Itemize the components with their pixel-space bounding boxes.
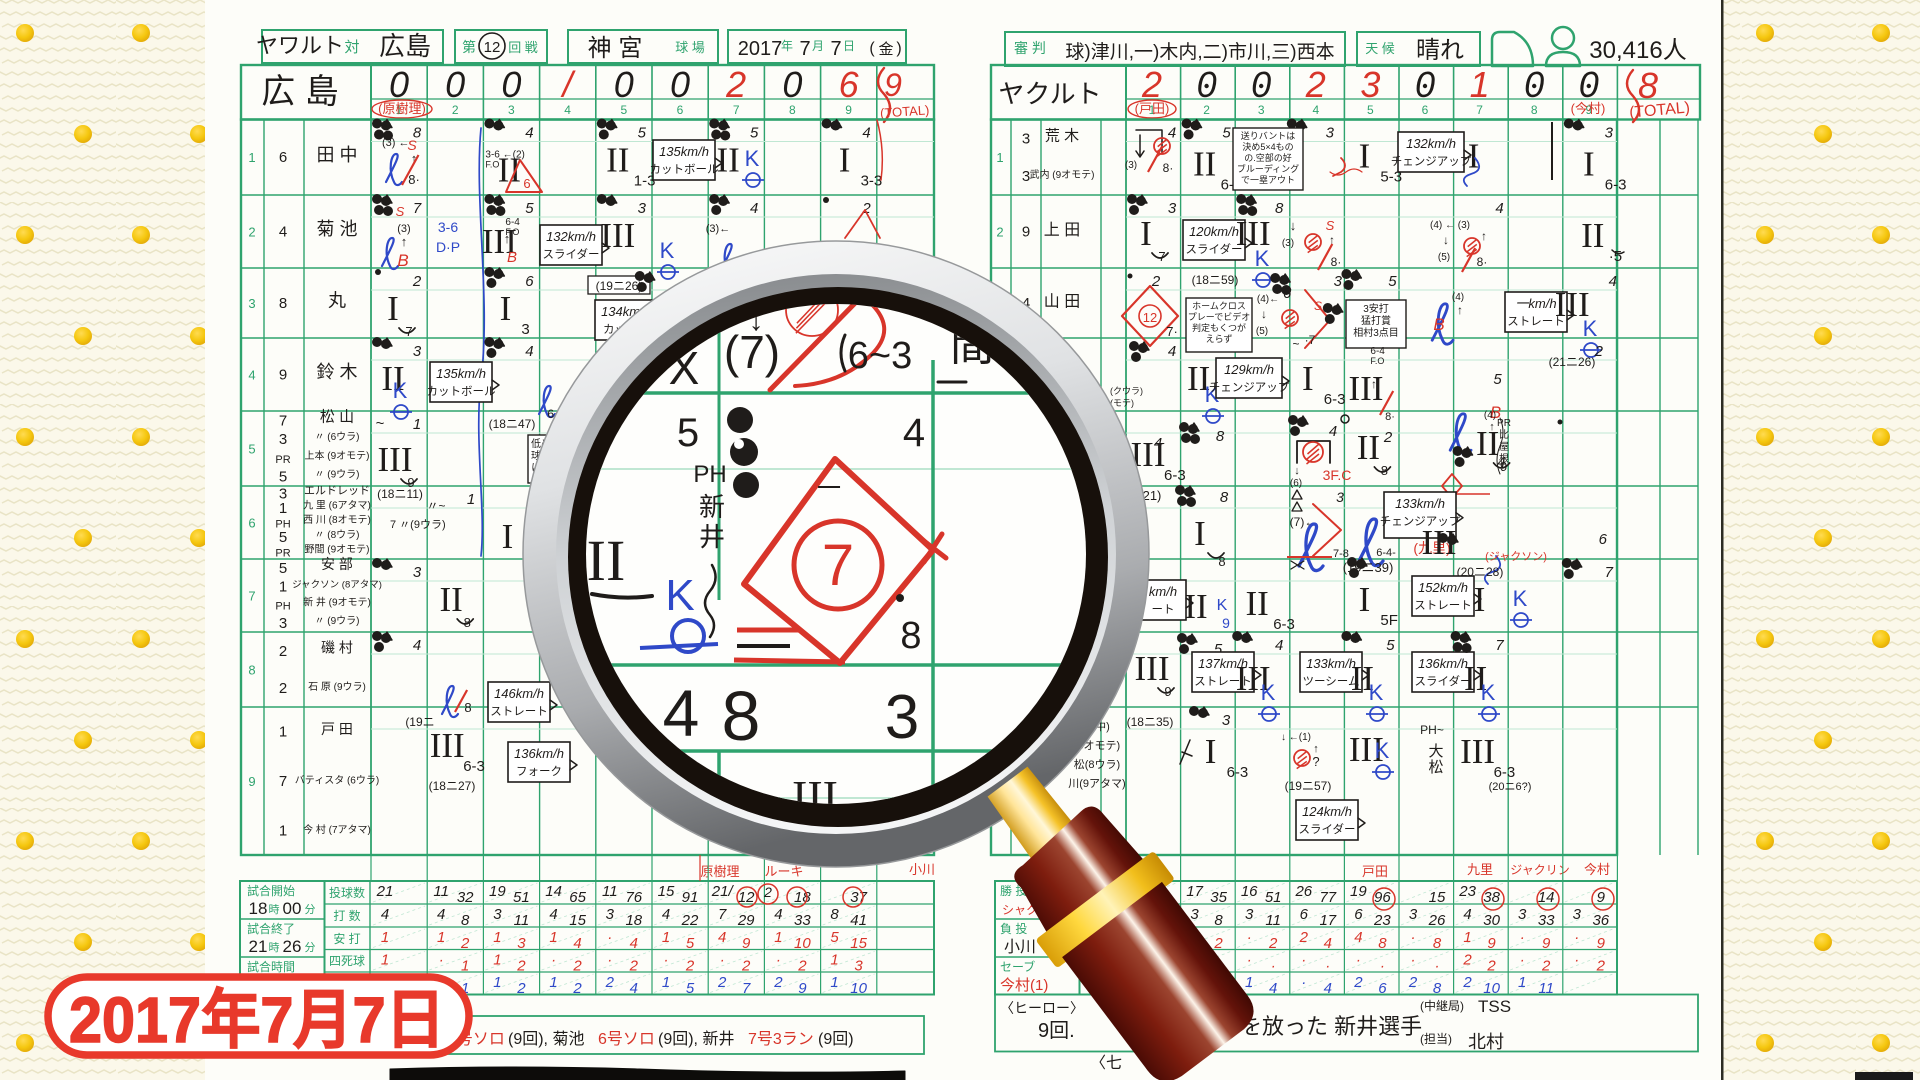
svg-text:3F.C: 3F.C bbox=[1323, 467, 1352, 483]
svg-text:8·: 8· bbox=[1385, 411, 1395, 423]
svg-text:6: 6 bbox=[1422, 103, 1429, 117]
svg-text:(5): (5) bbox=[1256, 326, 1268, 337]
svg-text:9: 9 bbox=[1487, 935, 1496, 952]
svg-text:4: 4 bbox=[248, 368, 255, 383]
svg-text:4: 4 bbox=[718, 929, 726, 946]
svg-text:8: 8 bbox=[464, 700, 471, 715]
svg-text:·: · bbox=[664, 952, 669, 969]
svg-text:神 宮: 神 宮 bbox=[588, 35, 643, 62]
svg-text:↑: ↑ bbox=[401, 234, 408, 249]
svg-text:山 田: 山 田 bbox=[1044, 293, 1080, 311]
svg-text:4: 4 bbox=[573, 935, 581, 952]
svg-text:·: · bbox=[1411, 952, 1416, 969]
svg-text:·: · bbox=[1325, 958, 1330, 975]
svg-text:): ) bbox=[896, 40, 901, 57]
svg-text:133km/h: 133km/h bbox=[1395, 496, 1445, 511]
svg-text:1: 1 bbox=[279, 578, 287, 595]
svg-text:7: 7 bbox=[1495, 637, 1504, 654]
svg-text:0: 0 bbox=[782, 64, 802, 105]
svg-text:4: 4 bbox=[549, 906, 557, 923]
svg-text:2: 2 bbox=[605, 974, 615, 991]
svg-text:·: · bbox=[1301, 952, 1306, 969]
svg-text:136km/h: 136km/h bbox=[514, 746, 564, 761]
svg-text:K: K bbox=[1481, 680, 1496, 705]
svg-text:5: 5 bbox=[1222, 125, 1231, 142]
svg-text:I: I bbox=[1583, 145, 1595, 184]
svg-text:3: 3 bbox=[1168, 200, 1177, 217]
svg-text:2: 2 bbox=[279, 643, 287, 660]
svg-text:上 田: 上 田 bbox=[1044, 221, 1080, 239]
svg-text:1: 1 bbox=[774, 929, 782, 946]
svg-text:2: 2 bbox=[797, 958, 807, 975]
svg-text:↓: ↓ bbox=[1290, 218, 1297, 233]
svg-text:(3): (3) bbox=[1282, 238, 1294, 249]
svg-text:PH: PH bbox=[275, 601, 290, 613]
svg-text:7: 7 bbox=[405, 324, 412, 339]
svg-text:1: 1 bbox=[437, 929, 445, 946]
svg-text:II: II bbox=[717, 141, 740, 180]
svg-text:武内 (9オモテ): 武内 (9オモテ) bbox=[1030, 168, 1095, 181]
svg-text:7: 7 bbox=[279, 412, 287, 429]
svg-text:エルドレッド: エルドレッド bbox=[304, 485, 370, 497]
svg-text:カットボール: カットボール bbox=[427, 385, 496, 398]
svg-text:·: · bbox=[1271, 958, 1276, 975]
svg-text:33: 33 bbox=[794, 912, 811, 929]
svg-text:0: 0 bbox=[501, 64, 521, 105]
svg-text:·: · bbox=[1574, 929, 1579, 946]
svg-text:広島: 広島 bbox=[379, 31, 431, 61]
svg-text:ホームクロス: ホームクロス bbox=[1192, 301, 1246, 311]
svg-text:2: 2 bbox=[1353, 974, 1363, 991]
svg-text:4: 4 bbox=[750, 200, 758, 217]
svg-text:I: I bbox=[1359, 137, 1371, 176]
svg-text:9: 9 bbox=[248, 774, 255, 789]
svg-text:四死球: 四死球 bbox=[329, 954, 365, 968]
svg-text:一km/h: 一km/h bbox=[1515, 296, 1556, 311]
svg-text:K: K bbox=[1583, 316, 1598, 341]
svg-text:6: 6 bbox=[677, 103, 684, 117]
svg-text:II: II bbox=[1581, 216, 1604, 255]
svg-text:原樹理: 原樹理 bbox=[700, 864, 739, 879]
svg-text:の.空部の好: の.空部の好 bbox=[1244, 152, 1292, 163]
svg-text:9: 9 bbox=[1597, 935, 1606, 952]
svg-text:3: 3 bbox=[413, 564, 422, 581]
svg-text:2: 2 bbox=[279, 680, 287, 697]
svg-text:今村(1): 今村(1) bbox=[1000, 977, 1048, 994]
svg-text:4: 4 bbox=[1168, 125, 1176, 142]
svg-text:~: ~ bbox=[374, 333, 382, 349]
svg-text:9: 9 bbox=[279, 367, 287, 384]
svg-text:II: II bbox=[1193, 145, 1216, 184]
svg-text:21: 21 bbox=[249, 937, 268, 956]
svg-text:4: 4 bbox=[1495, 200, 1503, 217]
svg-text:7: 7 bbox=[248, 589, 255, 604]
svg-text:4: 4 bbox=[1354, 929, 1362, 946]
svg-text:菊 池: 菊 池 bbox=[316, 219, 357, 239]
svg-text:2: 2 bbox=[1268, 935, 1278, 952]
svg-text:5: 5 bbox=[686, 935, 695, 952]
svg-text:1: 1 bbox=[830, 952, 838, 969]
svg-text:4: 4 bbox=[862, 125, 870, 142]
svg-text:4: 4 bbox=[1324, 935, 1332, 952]
svg-text:3: 3 bbox=[885, 683, 919, 752]
svg-text:II: II bbox=[1357, 428, 1380, 467]
svg-text:135km/h: 135km/h bbox=[436, 366, 486, 381]
svg-text:2: 2 bbox=[1213, 935, 1223, 952]
svg-text:6: 6 bbox=[1300, 906, 1309, 923]
svg-text:7-8: 7-8 bbox=[1333, 548, 1349, 560]
svg-text:8: 8 bbox=[1218, 554, 1225, 569]
svg-text:松 山: 松 山 bbox=[320, 408, 354, 425]
svg-text:·: · bbox=[607, 929, 612, 946]
svg-text:ブルーディング: ブルーディング bbox=[1237, 163, 1299, 174]
svg-text:(3) ←: (3) ← bbox=[382, 137, 410, 149]
svg-text:試合開始: 試合開始 bbox=[247, 883, 295, 898]
svg-text:·7: ·7 bbox=[1305, 333, 1316, 347]
svg-text:12: 12 bbox=[738, 889, 755, 906]
svg-text:00: 00 bbox=[283, 899, 302, 918]
svg-text:PH~: PH~ bbox=[1420, 723, 1444, 737]
svg-text:2: 2 bbox=[1141, 64, 1162, 105]
svg-text:II: II bbox=[1246, 584, 1269, 623]
svg-text:S: S bbox=[1326, 218, 1335, 233]
svg-text:金: 金 bbox=[878, 41, 893, 58]
svg-text:送りバントは: 送りバントは bbox=[1241, 130, 1295, 141]
svg-text:132km/h: 132km/h bbox=[546, 229, 596, 244]
svg-text:2: 2 bbox=[717, 974, 727, 991]
svg-text:7: 7 bbox=[1158, 249, 1165, 264]
svg-text:4: 4 bbox=[1312, 103, 1319, 117]
svg-text:1: 1 bbox=[381, 929, 389, 946]
svg-text:(中継局): (中継局) bbox=[1420, 998, 1464, 1013]
svg-text:8: 8 bbox=[1214, 912, 1223, 929]
svg-text:ジャクリン: ジャクリン bbox=[1510, 863, 1569, 877]
svg-text:9: 9 bbox=[1542, 935, 1551, 952]
svg-text:3: 3 bbox=[1022, 130, 1030, 147]
svg-text:8: 8 bbox=[461, 912, 470, 929]
svg-text:7: 7 bbox=[799, 38, 810, 60]
svg-text:バティスタ (6ウラ): バティスタ (6ウラ) bbox=[295, 775, 379, 787]
svg-text:152km/h: 152km/h bbox=[1418, 580, 1468, 595]
svg-text:4: 4 bbox=[1275, 637, 1283, 654]
svg-text:3: 3 bbox=[1360, 64, 1380, 105]
svg-text:3: 3 bbox=[279, 431, 287, 448]
svg-text:ート: ート bbox=[1152, 604, 1175, 616]
svg-text:6: 6 bbox=[839, 64, 860, 105]
svg-text:III: III bbox=[430, 726, 465, 765]
svg-text:1: 1 bbox=[248, 150, 255, 165]
svg-text:第: 第 bbox=[462, 39, 476, 55]
svg-text:4: 4 bbox=[1329, 423, 1337, 440]
svg-text:III: III bbox=[1135, 649, 1170, 688]
svg-text:比: 比 bbox=[1499, 429, 1509, 441]
svg-text:今村: 今村 bbox=[1584, 862, 1610, 877]
svg-text:21): 21) bbox=[1143, 488, 1162, 503]
svg-text:18: 18 bbox=[625, 912, 642, 929]
svg-text:(戸田): (戸田) bbox=[1135, 101, 1170, 116]
svg-text:9: 9 bbox=[1164, 684, 1171, 699]
svg-text:(9回), 菊池: (9回), 菊池 bbox=[508, 1030, 584, 1048]
svg-text:(担当): (担当) bbox=[1420, 1032, 1452, 1046]
svg-text:2: 2 bbox=[1541, 958, 1551, 975]
svg-text:1: 1 bbox=[279, 500, 287, 517]
svg-text:I: I bbox=[387, 289, 399, 328]
svg-text:1: 1 bbox=[662, 974, 670, 991]
svg-text:30: 30 bbox=[1483, 912, 1500, 929]
svg-text:3: 3 bbox=[1518, 906, 1527, 923]
svg-text:·: · bbox=[1520, 952, 1525, 969]
svg-text:8: 8 bbox=[1216, 428, 1225, 445]
svg-text:I: I bbox=[1302, 359, 1314, 398]
svg-text:(7)←: (7)← bbox=[1290, 515, 1317, 529]
svg-text:2: 2 bbox=[248, 225, 255, 240]
svg-text:4: 4 bbox=[1609, 273, 1617, 290]
svg-text:小川: 小川 bbox=[909, 862, 935, 877]
svg-text:8: 8 bbox=[1638, 65, 1658, 106]
svg-text:1: 1 bbox=[1245, 974, 1253, 991]
svg-text:32: 32 bbox=[457, 889, 474, 906]
svg-text:12: 12 bbox=[1143, 310, 1157, 325]
svg-text:1: 1 bbox=[493, 974, 501, 991]
svg-text:4: 4 bbox=[630, 935, 638, 952]
svg-text:小川: 小川 bbox=[1004, 938, 1036, 956]
svg-text:(19ニ57): (19ニ57) bbox=[1285, 779, 1332, 793]
svg-text:2: 2 bbox=[412, 273, 422, 290]
svg-text:5: 5 bbox=[1386, 637, 1395, 654]
svg-text:·: · bbox=[1356, 952, 1361, 969]
svg-text:野間 (9オモテ): 野間 (9オモテ) bbox=[305, 543, 370, 555]
svg-text:21: 21 bbox=[376, 883, 394, 900]
svg-text:5: 5 bbox=[1367, 103, 1374, 117]
svg-text:8·: 8· bbox=[408, 172, 420, 187]
svg-text:3: 3 bbox=[1409, 906, 1418, 923]
svg-text:I: I bbox=[1474, 580, 1486, 619]
svg-text:(9回), 新井: (9回), 新井 bbox=[658, 1030, 734, 1048]
svg-text:15: 15 bbox=[569, 912, 586, 929]
svg-text:プレーでビデオ: プレーでビデオ bbox=[1188, 311, 1250, 322]
svg-text:I: I bbox=[1194, 514, 1206, 553]
svg-text:(18ニ27): (18ニ27) bbox=[429, 779, 476, 793]
svg-text:1: 1 bbox=[549, 929, 557, 946]
svg-text:8: 8 bbox=[1433, 935, 1442, 952]
svg-text:6: 6 bbox=[1283, 285, 1292, 302]
svg-text:3: 3 bbox=[517, 935, 526, 952]
svg-text:33: 33 bbox=[1538, 912, 1555, 929]
svg-text:133km/h: 133km/h bbox=[1306, 656, 1356, 671]
svg-text:8: 8 bbox=[722, 677, 761, 755]
svg-text:6: 6 bbox=[1599, 531, 1608, 548]
svg-text:III: III bbox=[1460, 732, 1495, 771]
svg-text:4: 4 bbox=[1154, 435, 1162, 452]
svg-text:146km/h: 146km/h bbox=[494, 686, 544, 701]
svg-text:6: 6 bbox=[525, 273, 534, 290]
svg-text:4: 4 bbox=[903, 411, 925, 455]
svg-text:5: 5 bbox=[677, 411, 699, 455]
svg-text:8: 8 bbox=[464, 615, 471, 630]
svg-text:23: 23 bbox=[1458, 883, 1476, 900]
svg-text:4: 4 bbox=[413, 637, 421, 654]
svg-text:5: 5 bbox=[750, 125, 759, 142]
svg-text:9: 9 bbox=[845, 103, 852, 117]
svg-text:0: 0 bbox=[389, 64, 409, 105]
svg-text:2: 2 bbox=[1408, 974, 1418, 991]
svg-text:3: 3 bbox=[413, 343, 422, 360]
svg-text:2: 2 bbox=[516, 958, 526, 975]
svg-text:相村3点目: 相村3点目 bbox=[1353, 326, 1399, 339]
svg-text:分: 分 bbox=[305, 941, 316, 954]
svg-text:1: 1 bbox=[493, 929, 501, 946]
svg-text:安 部: 安 部 bbox=[321, 556, 353, 572]
svg-text:11: 11 bbox=[433, 883, 449, 900]
svg-text:6-3: 6-3 bbox=[1227, 764, 1249, 781]
svg-text:1: 1 bbox=[662, 929, 670, 946]
svg-text:チェンジアップ: チェンジアップ bbox=[1391, 155, 1472, 168]
svg-text:1: 1 bbox=[493, 952, 501, 969]
svg-text:·: · bbox=[720, 952, 725, 969]
svg-text:2: 2 bbox=[685, 958, 695, 975]
svg-text:3: 3 bbox=[1326, 125, 1335, 142]
svg-text:9回.: 9回. bbox=[1038, 1020, 1075, 1042]
svg-text:II: II bbox=[1476, 424, 1499, 463]
svg-text:·: · bbox=[1574, 952, 1579, 969]
svg-text:2: 2 bbox=[773, 974, 783, 991]
svg-text:4: 4 bbox=[525, 125, 533, 142]
svg-text:磯 村: 磯 村 bbox=[321, 640, 353, 656]
svg-text:6-3: 6-3 bbox=[463, 758, 485, 775]
svg-text:26: 26 bbox=[1428, 912, 1446, 929]
svg-text:↓: ↓ bbox=[1261, 307, 1267, 321]
svg-text:3: 3 bbox=[1258, 103, 1265, 117]
svg-text:判定もくつが: 判定もくつが bbox=[1192, 322, 1246, 333]
svg-text:?: ? bbox=[1312, 754, 1319, 769]
svg-text:6: 6 bbox=[1354, 906, 1363, 923]
svg-text:4: 4 bbox=[279, 224, 287, 241]
svg-text:西 川 (8オモテ): 西 川 (8オモテ) bbox=[303, 514, 371, 526]
svg-text:九里: 九里 bbox=[1467, 862, 1493, 877]
svg-text:16: 16 bbox=[1241, 883, 1258, 900]
svg-text:今 村 (7アタマ): 今 村 (7アタマ) bbox=[303, 823, 371, 836]
svg-text:~: ~ bbox=[376, 415, 385, 432]
svg-text:〃 (9ウラ): 〃 (9ウラ) bbox=[315, 469, 360, 481]
svg-text:15: 15 bbox=[850, 935, 867, 952]
svg-text:4: 4 bbox=[564, 103, 571, 117]
svg-text:·: · bbox=[439, 952, 444, 969]
svg-text:K: K bbox=[660, 238, 675, 263]
svg-text:5: 5 bbox=[830, 929, 839, 946]
svg-text:37: 37 bbox=[850, 889, 867, 906]
svg-text:〈ヒーロー〉: 〈ヒーロー〉 bbox=[1000, 1000, 1084, 1016]
svg-text:1: 1 bbox=[1463, 929, 1471, 946]
svg-text:7: 7 bbox=[279, 773, 287, 790]
svg-text:8: 8 bbox=[1381, 463, 1388, 478]
svg-text:·: · bbox=[1301, 974, 1306, 991]
svg-text:·5: ·5 bbox=[1609, 248, 1622, 265]
svg-text:6-3: 6-3 bbox=[1605, 177, 1627, 194]
svg-text:5: 5 bbox=[620, 103, 627, 117]
svg-text:19: 19 bbox=[489, 883, 506, 900]
svg-text:·: · bbox=[551, 952, 556, 969]
svg-text:〃 (8ウラ): 〃 (8ウラ) bbox=[315, 529, 360, 541]
svg-text:対: 対 bbox=[344, 39, 359, 56]
svg-text:7·: 7· bbox=[1166, 324, 1178, 339]
svg-text:3: 3 bbox=[279, 615, 287, 632]
svg-text:3: 3 bbox=[606, 906, 615, 923]
svg-text:11: 11 bbox=[1265, 912, 1281, 929]
svg-text:(4) ← (3): (4) ← (3) bbox=[1430, 220, 1470, 231]
svg-text:29: 29 bbox=[737, 912, 755, 929]
svg-text:3安打: 3安打 bbox=[1363, 302, 1389, 315]
svg-text:(6): (6) bbox=[1290, 478, 1302, 489]
svg-text:7: 7 bbox=[1605, 564, 1614, 581]
svg-text:8: 8 bbox=[900, 615, 921, 657]
svg-text:1: 1 bbox=[381, 952, 389, 969]
svg-text:17: 17 bbox=[1319, 912, 1336, 929]
svg-text:II: II bbox=[606, 141, 629, 180]
svg-text:4: 4 bbox=[437, 906, 445, 923]
svg-text:4: 4 bbox=[630, 980, 638, 997]
svg-text:試合終了: 試合終了 bbox=[247, 921, 295, 936]
svg-text:K: K bbox=[1375, 738, 1390, 763]
svg-text:136km/h: 136km/h bbox=[1418, 656, 1468, 671]
svg-text:1: 1 bbox=[996, 150, 1003, 165]
svg-text:↓: ↓ bbox=[1443, 233, 1449, 247]
svg-text:田 中: 田 中 bbox=[316, 145, 357, 165]
svg-text:スライダー: スライダー bbox=[1298, 822, 1355, 836]
svg-text:九 里 (6アタマ): 九 里 (6アタマ) bbox=[303, 500, 371, 512]
svg-text:7: 7 bbox=[822, 533, 854, 598]
svg-text:6-3: 6-3 bbox=[1273, 616, 1295, 633]
svg-text:91: 91 bbox=[682, 889, 699, 906]
svg-text:ジャクソン (8アタマ): ジャクソン (8アタマ) bbox=[292, 579, 382, 590]
svg-text:35: 35 bbox=[1210, 889, 1227, 906]
svg-text:↑: ↑ bbox=[1481, 229, 1487, 243]
svg-text:3: 3 bbox=[1605, 125, 1614, 142]
svg-text:0: 0 bbox=[670, 64, 690, 105]
svg-text:3: 3 bbox=[1245, 906, 1254, 923]
svg-text:鈴 木: 鈴 木 bbox=[316, 362, 357, 382]
svg-text:23: 23 bbox=[1373, 912, 1391, 929]
svg-text:5: 5 bbox=[638, 125, 647, 142]
svg-text:2017: 2017 bbox=[738, 38, 783, 60]
svg-text:7: 7 bbox=[830, 38, 841, 60]
svg-text:5: 5 bbox=[686, 980, 695, 997]
svg-text:2: 2 bbox=[460, 935, 470, 952]
svg-text:2: 2 bbox=[1299, 929, 1309, 946]
svg-text:K: K bbox=[393, 378, 408, 403]
svg-text:時: 時 bbox=[269, 941, 280, 954]
svg-text:新: 新 bbox=[699, 492, 725, 522]
svg-text:2: 2 bbox=[1594, 343, 1604, 360]
svg-text:15: 15 bbox=[1429, 889, 1446, 906]
svg-text:(19ニ26): (19ニ26) bbox=[596, 279, 643, 293]
svg-text:球 場: 球 場 bbox=[675, 40, 705, 55]
svg-text:PH: PH bbox=[693, 461, 726, 488]
svg-text:1: 1 bbox=[279, 724, 287, 741]
svg-text:投球数: 投球数 bbox=[329, 885, 365, 900]
svg-text:II: II bbox=[440, 580, 463, 619]
svg-text:K: K bbox=[1255, 246, 1270, 271]
svg-text:(9回): (9回) bbox=[818, 1031, 854, 1048]
svg-text:(モテ): (モテ) bbox=[1110, 398, 1134, 408]
svg-text:猛打賞: 猛打賞 bbox=[1361, 314, 1391, 327]
svg-text:分: 分 bbox=[305, 903, 316, 916]
svg-text:3: 3 bbox=[521, 321, 529, 338]
svg-text:(3)←: (3)← bbox=[706, 223, 730, 235]
svg-text:回 戦: 回 戦 bbox=[508, 40, 538, 55]
svg-text:2: 2 bbox=[1462, 974, 1472, 991]
svg-text:球)津川,一)木内,二)市川,三)西本: 球)津川,一)木内,二)市川,三)西本 bbox=[1065, 41, 1334, 63]
svg-text:7号3ラン: 7号3ラン bbox=[748, 1030, 814, 1048]
